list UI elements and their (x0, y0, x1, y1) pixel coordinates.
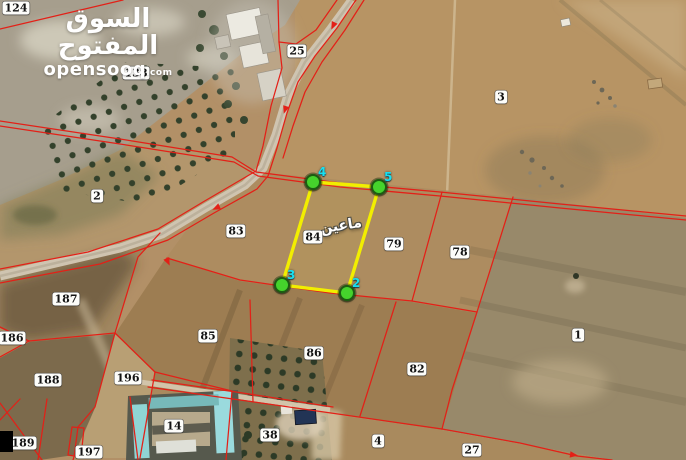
logo-domain-text: opensooq.com (26, 61, 190, 80)
logo-domain-main: opensooq (44, 59, 147, 80)
map-canvas[interactable]: ماعين 1241382532838479781871868511881968… (0, 0, 686, 460)
logo-arabic-text: السوق المفتوح (26, 6, 190, 61)
opensooq-watermark: السوق المفتوح opensooq.com (26, 6, 190, 79)
logo-domain-tld: .com (146, 68, 172, 78)
redacted-box (0, 431, 13, 452)
